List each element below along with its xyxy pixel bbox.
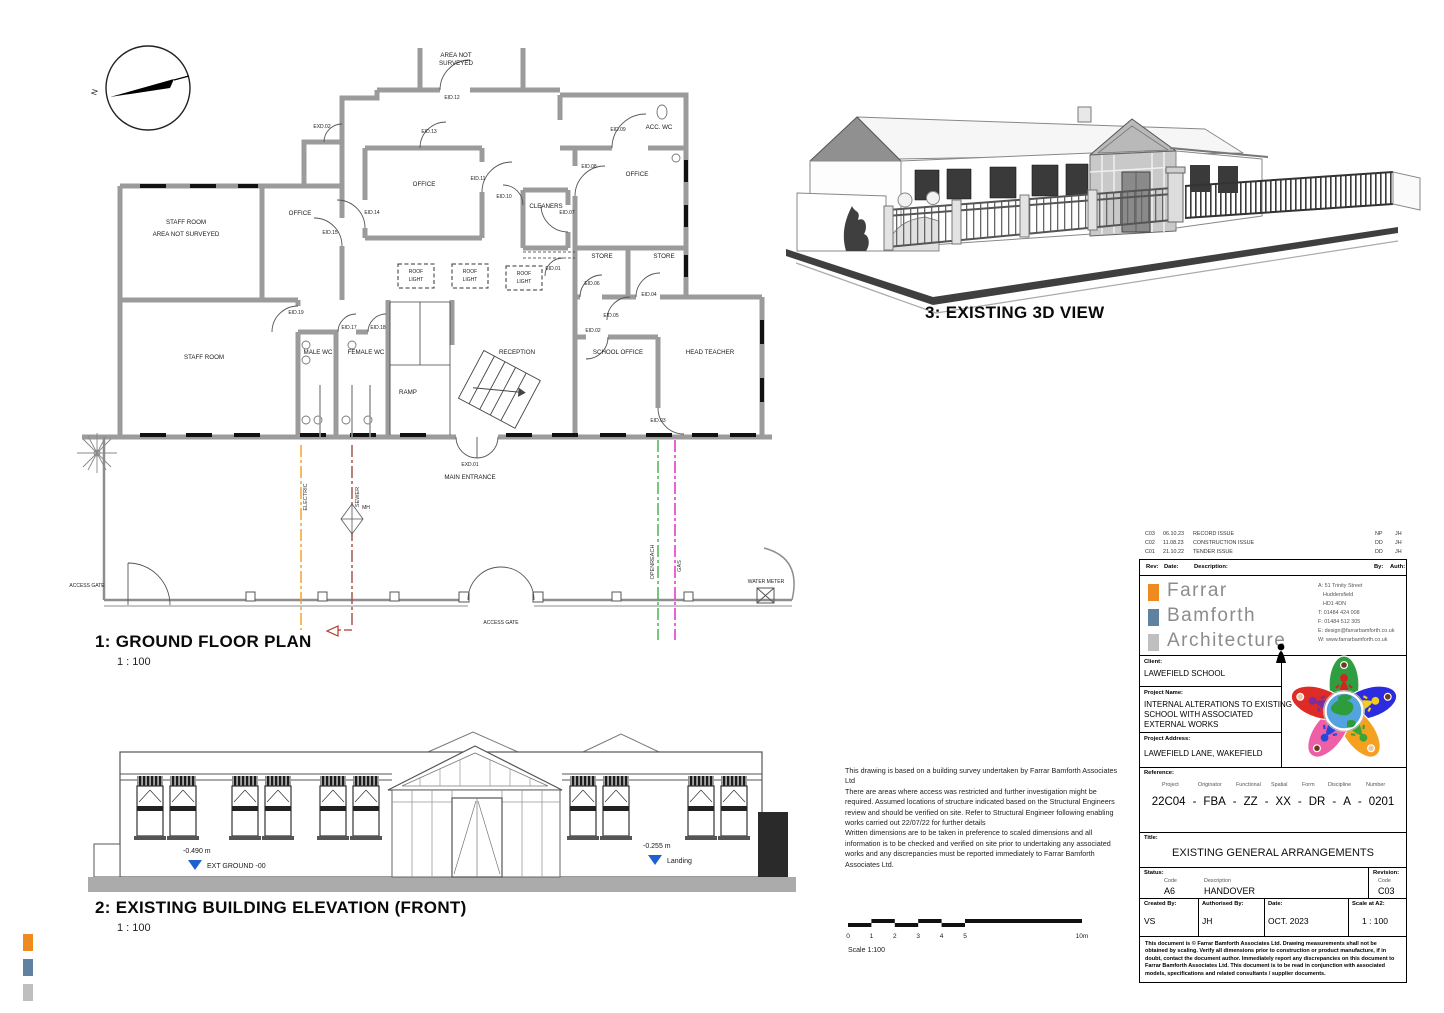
rev-cell: RECORD ISSUE <box>1193 531 1234 537</box>
door-tag: EID.17 <box>341 325 357 331</box>
label-staff-area: AREA NOT SURVEYED <box>153 231 220 238</box>
desc-header: Description: <box>1194 564 1228 570</box>
door-tag: EID.14 <box>364 210 380 216</box>
ref-header: Spatial <box>1271 782 1287 788</box>
label-roof-1: ROOF <box>409 269 423 275</box>
label-sewer: SEWER <box>355 487 361 507</box>
ref-value: FBA <box>1203 796 1225 808</box>
svg-text:0: 0 <box>846 933 850 940</box>
client-label: Client: <box>1144 659 1162 665</box>
firm-fax: F: 01484 512 305 <box>1318 619 1360 625</box>
title-block: Rev: Date: Description: By: Auth: Farrar… <box>1139 559 1407 983</box>
rev-cell: 06.10.23 <box>1163 531 1184 537</box>
project-name-1: INTERNAL ALTERATIONS TO EXISTING <box>1144 700 1292 709</box>
scale-value: 1 : 100 <box>1362 916 1388 926</box>
svg-text:3: 3 <box>916 933 920 940</box>
svg-text:4: 4 <box>940 933 944 940</box>
logo-square-gray <box>1148 634 1159 651</box>
door-tag: EID.06 <box>584 281 600 287</box>
label-light-2: LIGHT <box>463 277 478 283</box>
ref-value: 22C04 <box>1152 796 1186 808</box>
label-openreach: OPENREACH <box>650 545 656 580</box>
ref-sep: - <box>1358 796 1362 808</box>
firm-email: E: design@farrarbamforth.co.uk <box>1318 628 1394 634</box>
stairs <box>458 350 540 428</box>
label-female-wc: FEMALE WC <box>348 349 385 356</box>
reference-label: Reference: <box>1144 770 1174 776</box>
label-staff-room-upper: STAFF ROOM <box>166 219 206 226</box>
door-tag: EID.04 <box>641 292 657 298</box>
corner-chip-gray <box>23 984 33 1001</box>
ground-floor-plan: N <box>0 0 820 650</box>
ref-header: Originator <box>1198 782 1222 788</box>
label-main-entrance: MAIN ENTRANCE <box>444 474 495 481</box>
manhole-icon <box>341 504 363 534</box>
label-electric: ELECTRIC <box>303 483 309 510</box>
door-tag: EID.13 <box>421 129 437 135</box>
survey-notes: This drawing is based on a building surv… <box>845 766 1121 870</box>
door-tag: EID.08 <box>581 164 597 170</box>
by-header: By: <box>1374 564 1383 570</box>
door-tag: EID.15 <box>322 230 338 236</box>
ref-header: Form <box>1302 782 1315 788</box>
scale-bar-segments <box>848 919 1082 927</box>
firm-address-line: Huddersfield <box>1323 592 1353 598</box>
authorised-by: JH <box>1202 916 1212 926</box>
label-gas: GAS <box>677 560 683 572</box>
date-label: Date: <box>1268 901 1283 907</box>
client-value: LAWEFIELD SCHOOL <box>1144 669 1225 678</box>
sewer-arrow <box>327 626 352 636</box>
rev-cell: NP <box>1375 531 1383 537</box>
label-male-wc: MALE WC <box>304 349 333 356</box>
svg-text:10m: 10m <box>1076 933 1089 940</box>
corner-chip-steel <box>23 959 33 976</box>
ref-value: 0201 <box>1369 796 1395 808</box>
label-cleaners: CLEANERS <box>529 203 562 210</box>
rev-header: Rev: <box>1146 564 1159 570</box>
project-name-3: EXTERNAL WORKS <box>1144 720 1218 729</box>
status-label: Status: <box>1144 870 1164 876</box>
created-by: VS <box>1144 916 1155 926</box>
rev-cell: TENDER ISSUE <box>1193 549 1233 555</box>
north-label: N <box>89 88 99 96</box>
status-desc-header: Description <box>1204 878 1231 884</box>
auth-header: Auth: <box>1390 564 1405 570</box>
ref-value: A <box>1343 796 1351 808</box>
authorised-by-label: Authorised By: <box>1202 901 1244 907</box>
svg-text:5: 5 <box>963 933 967 940</box>
svg-text:1: 1 <box>870 933 874 940</box>
firm-website: W: www.farrarbamforth.co.uk <box>1318 637 1387 643</box>
created-by-label: Created By: <box>1144 901 1177 907</box>
project-address-value: LAWEFIELD LANE, WAKEFIELD <box>1144 749 1263 758</box>
project-name-2: SCHOOL WITH ASSOCIATED <box>1144 710 1253 719</box>
site-boundary <box>104 437 794 606</box>
door-tag: EID.11 <box>471 176 486 182</box>
rev-cell: C01 <box>1145 549 1155 555</box>
elevation-title: 2: EXISTING BUILDING ELEVATION (FRONT) <box>95 898 467 918</box>
view3d-title: 3: EXISTING 3D VIEW <box>925 303 1105 323</box>
rev-cell: DD <box>1375 540 1383 546</box>
label-area-not-surveyed-2: SURVEYED <box>439 60 473 67</box>
ref-sep: - <box>1193 796 1197 808</box>
label-store-2: STORE <box>653 253 674 260</box>
label-access-gate-left: ACCESS GATE <box>69 583 105 589</box>
label-light-1: LIGHT <box>409 277 424 283</box>
tree-icon <box>77 433 117 473</box>
elevation-scale: 1 : 100 <box>117 922 151 934</box>
label-roof-3: ROOF <box>517 271 531 277</box>
door-tag: EID.19 <box>288 310 304 316</box>
date-header: Date: <box>1164 564 1179 570</box>
door-tag: EID.05 <box>603 313 619 319</box>
door-tag: EID.01 <box>545 266 561 272</box>
door-tag: EXD.01 <box>461 462 478 468</box>
ref-sep: - <box>1265 796 1269 808</box>
rev-cell: 21.10.22 <box>1163 549 1184 555</box>
rev-cell: 11.08.23 <box>1163 540 1184 546</box>
label-mh: MH <box>362 505 370 511</box>
label-office-left: OFFICE <box>289 210 312 217</box>
rev-cell: JH <box>1395 531 1402 537</box>
date-value: OCT. 2023 <box>1268 916 1309 926</box>
rev-cell: JH <box>1395 549 1402 555</box>
project-name-label: Project Name: <box>1144 690 1183 696</box>
existing-3d-view <box>780 85 1425 307</box>
reference-code: 22C04 - FBA - ZZ - XX - DR - A - 0201 <box>1140 796 1406 808</box>
firm-address-line: A: 51 Trinity Street <box>1318 583 1362 589</box>
label-access-gate-right: ACCESS GATE <box>483 620 519 626</box>
rev-cell: CONSTRUCTION ISSUE <box>1193 540 1254 546</box>
status-code: A6 <box>1164 886 1175 896</box>
ref-header: Discipline <box>1328 782 1351 788</box>
title-label: Title: <box>1144 835 1158 841</box>
label-store-1: STORE <box>591 253 612 260</box>
revision-code-header: Code <box>1378 878 1391 884</box>
ref-sep: - <box>1298 796 1302 808</box>
rev-cell: JH <box>1395 540 1402 546</box>
status-code-header: Code <box>1164 878 1177 884</box>
logo-square-steel <box>1148 609 1159 626</box>
ref-value: DR <box>1309 796 1326 808</box>
project-address-label: Project Address: <box>1144 736 1190 742</box>
utility-lines <box>301 440 675 640</box>
status-description: HANDOVER <box>1204 886 1255 896</box>
disclaimer-text: This document is © Farrar Bamforth Assoc… <box>1145 941 1401 978</box>
door-tag: EID.18 <box>370 325 386 331</box>
ext-ground-value: -0.490 m <box>183 848 211 855</box>
drawing-title: EXISTING GENERAL ARRANGEMENTS <box>1140 847 1406 859</box>
school-logo <box>1281 655 1408 767</box>
label-roof-2: ROOF <box>463 269 477 275</box>
label-head-teacher: HEAD TEACHER <box>686 349 735 356</box>
label-ramp: RAMP <box>399 389 417 396</box>
door-tag: EID.02 <box>585 328 601 334</box>
door-tag: EID.09 <box>610 127 626 133</box>
label-reception: RECEPTION <box>499 349 535 356</box>
landing-label: Landing <box>667 858 692 865</box>
landing-value: -0.255 m <box>643 843 671 850</box>
label-office-right: OFFICE <box>626 171 649 178</box>
ref-header: Functional <box>1236 782 1261 788</box>
door-tag: EID.10 <box>496 194 512 200</box>
building-elevation: -0.490 m EXT GROUND -00 -0.255 m Landing <box>80 700 804 908</box>
scale-bar-label: Scale 1:100 <box>848 947 885 954</box>
ref-value: XX <box>1276 796 1291 808</box>
door-tag: EID.12 <box>444 95 460 101</box>
firm-name-1: Farrar <box>1167 580 1228 602</box>
revision-history: C03 06.10.23 RECORD ISSUE NP JH C02 11.0… <box>1139 531 1407 557</box>
revision-code: C03 <box>1378 886 1395 896</box>
ref-header: Number <box>1366 782 1385 788</box>
ext-ground-label: EXT GROUND -00 <box>207 863 266 870</box>
corner-chip-orange <box>23 934 33 951</box>
firm-name-2: Bamforth <box>1167 605 1256 627</box>
door-tag: EID.07 <box>559 210 575 216</box>
label-acc-wc: ACC. WC <box>646 124 673 131</box>
plan-scale: 1 : 100 <box>117 656 151 668</box>
rev-cell: C02 <box>1145 540 1155 546</box>
firm-phone: T: 01484 424 008 <box>1318 610 1360 616</box>
rev-cell: C03 <box>1145 531 1155 537</box>
label-school-office: SCHOOL OFFICE <box>593 349 643 356</box>
label-water-meter: WATER METER <box>748 579 785 585</box>
plan-title: 1: GROUND FLOOR PLAN <box>95 632 312 652</box>
ref-sep: - <box>1233 796 1237 808</box>
logo-square-orange <box>1148 584 1159 601</box>
north-arrow-icon: N <box>89 46 190 130</box>
label-light-3: LIGHT <box>517 279 532 285</box>
label-staff-room-lower: STAFF ROOM <box>184 354 224 361</box>
ref-value: ZZ <box>1244 796 1258 808</box>
ramp <box>390 302 450 435</box>
svg-text:2: 2 <box>893 933 897 940</box>
ref-header: Project <box>1162 782 1179 788</box>
firm-address-line: HD1 4DN <box>1323 601 1346 607</box>
revision-label: Revision: <box>1373 870 1399 876</box>
door-tag: EID.03 <box>650 418 666 424</box>
label-office-mid: OFFICE <box>413 181 436 188</box>
scale-bar: 0 1 2 3 4 5 10m Scale 1:100 <box>840 903 1100 965</box>
firm-name-3: Architecture <box>1167 630 1286 652</box>
ref-sep: - <box>1332 796 1336 808</box>
scale-label: Scale at A2: <box>1352 901 1385 907</box>
rev-cell: DD <box>1375 549 1383 555</box>
scale-bar-ticks: 0 1 2 3 4 5 10m <box>846 933 1088 940</box>
drawing-sheet: N <box>0 0 1444 1013</box>
door-tag: EXD.02 <box>313 124 330 130</box>
label-area-not-surveyed-1: AREA NOT <box>440 52 472 59</box>
